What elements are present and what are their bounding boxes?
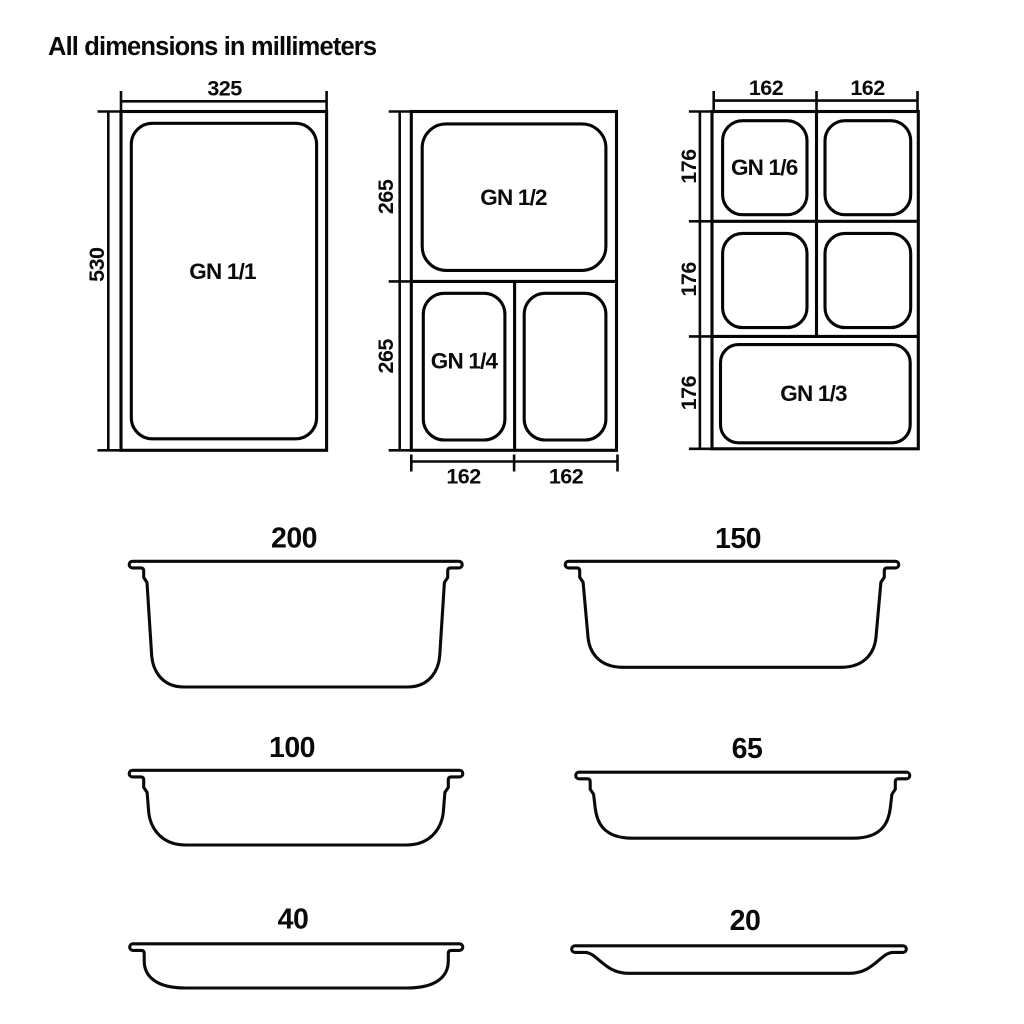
svg-text:162: 162: [549, 465, 584, 489]
svg-text:GN 1/1: GN 1/1: [189, 259, 256, 284]
svg-text:162: 162: [850, 76, 885, 100]
svg-text:162: 162: [749, 76, 784, 100]
svg-text:20: 20: [730, 905, 761, 937]
svg-text:GN 1/4: GN 1/4: [431, 349, 499, 374]
svg-text:530: 530: [85, 247, 109, 282]
svg-text:162: 162: [446, 465, 481, 489]
svg-text:176: 176: [677, 149, 701, 184]
svg-text:265: 265: [374, 179, 398, 214]
svg-text:325: 325: [207, 77, 242, 101]
svg-text:All dimensions in millimeters: All dimensions in millimeters: [48, 33, 377, 61]
svg-text:GN 1/3: GN 1/3: [780, 381, 847, 406]
svg-text:265: 265: [374, 339, 398, 374]
svg-text:176: 176: [677, 262, 701, 297]
svg-text:40: 40: [278, 904, 309, 936]
svg-text:GN 1/2: GN 1/2: [480, 185, 547, 210]
svg-text:65: 65: [732, 733, 763, 765]
svg-text:GN 1/6: GN 1/6: [731, 155, 798, 180]
svg-text:100: 100: [269, 732, 315, 764]
svg-text:176: 176: [677, 375, 701, 410]
svg-text:150: 150: [715, 523, 761, 555]
svg-text:200: 200: [271, 522, 317, 554]
